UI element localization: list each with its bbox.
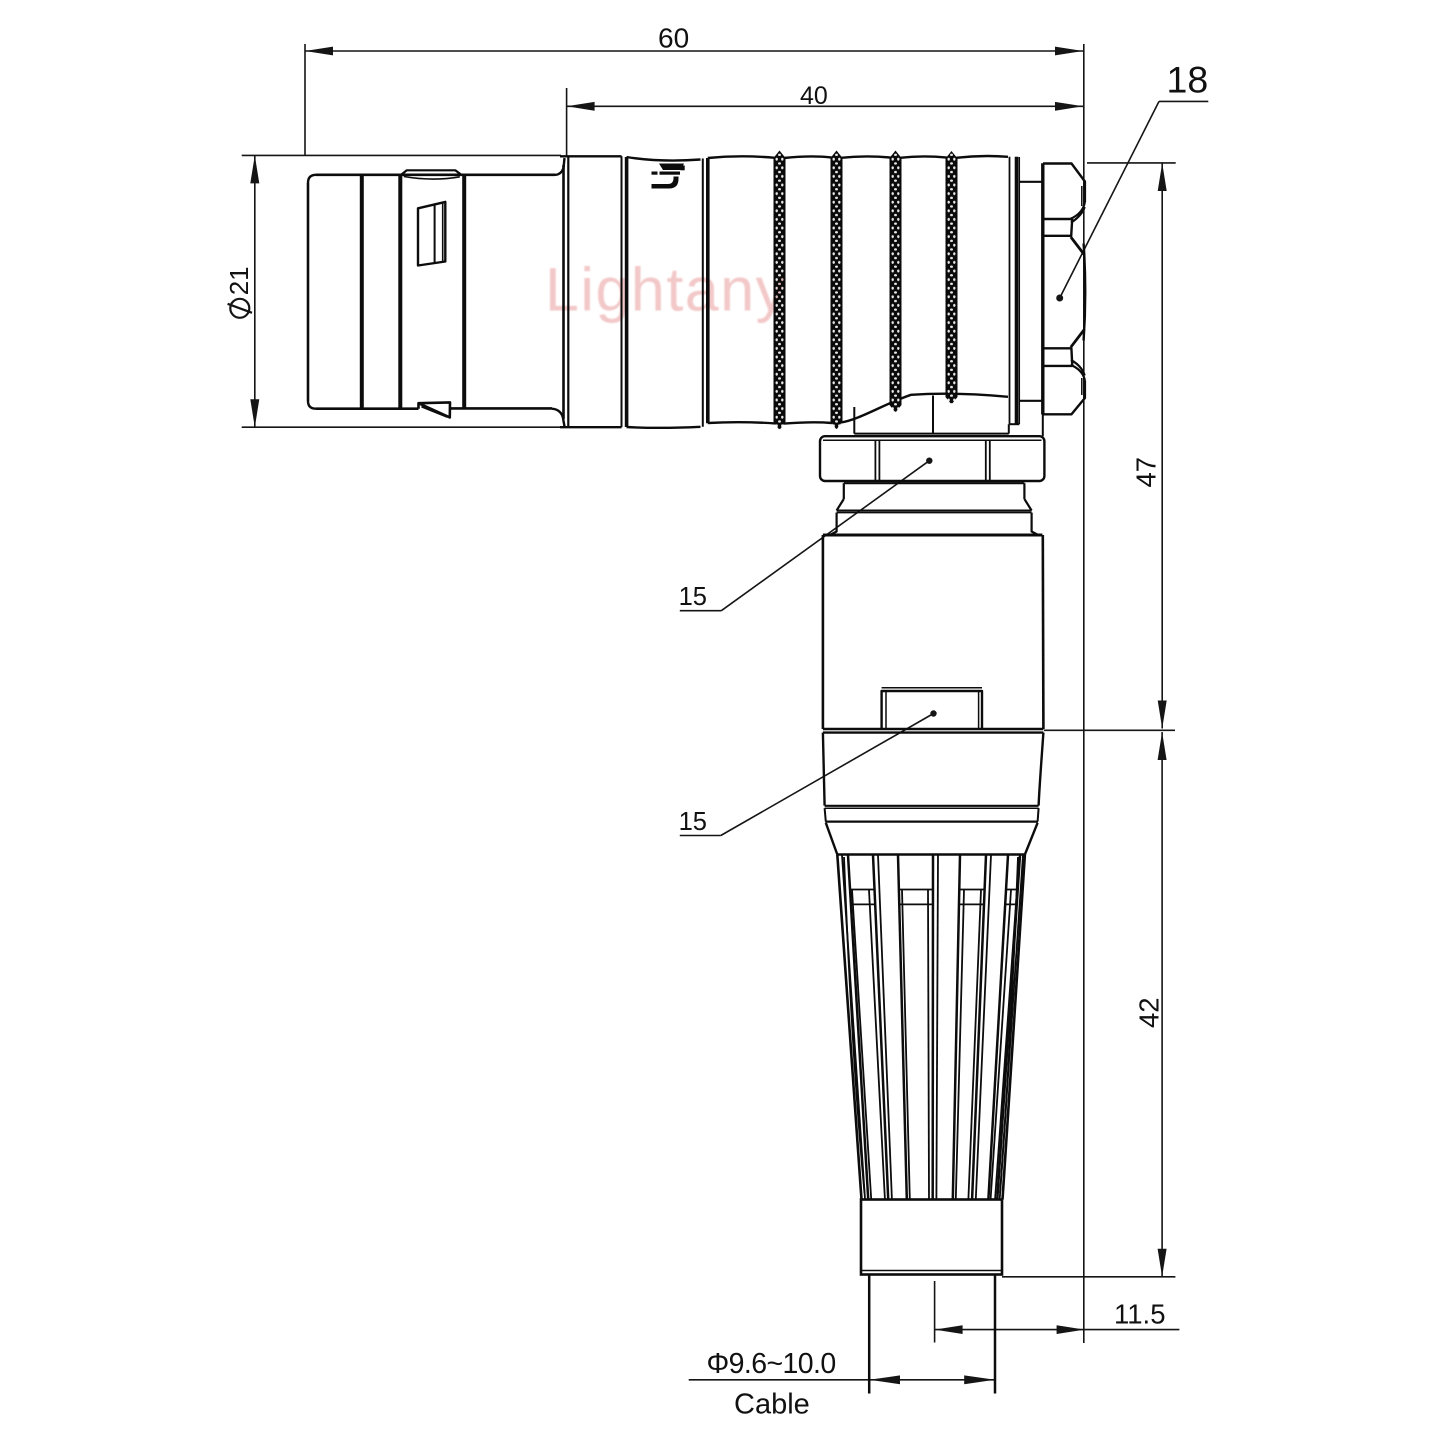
svg-text:15: 15 xyxy=(679,808,707,836)
svg-text:40: 40 xyxy=(800,82,828,110)
svg-text:Cable: Cable xyxy=(734,1389,810,1421)
svg-text:15: 15 xyxy=(679,583,707,611)
svg-text:21: 21 xyxy=(224,266,254,295)
svg-text:Lightany: Lightany xyxy=(545,256,788,324)
svg-text:18: 18 xyxy=(1167,59,1209,101)
svg-text:11.5: 11.5 xyxy=(1114,1299,1165,1330)
svg-text:Φ9.6~10.0: Φ9.6~10.0 xyxy=(707,1348,836,1380)
svg-text:60: 60 xyxy=(658,23,689,54)
svg-text:47: 47 xyxy=(1131,457,1162,488)
svg-text:42: 42 xyxy=(1134,997,1165,1028)
